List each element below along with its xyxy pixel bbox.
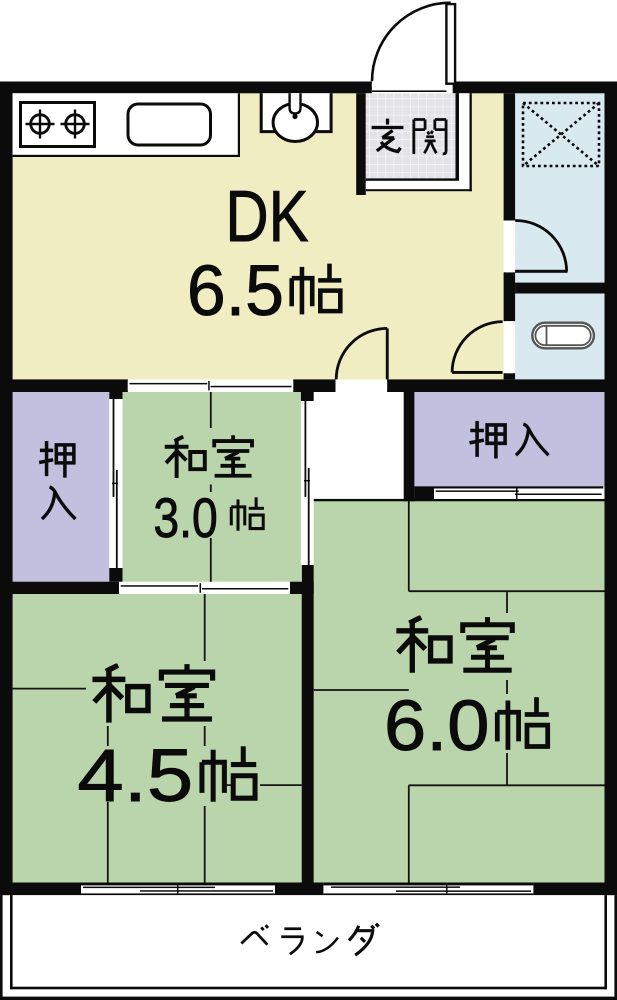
svg-text:6.0: 6.0 xyxy=(384,687,490,766)
svg-text:3.0: 3.0 xyxy=(153,486,217,549)
svg-text:4.5: 4.5 xyxy=(77,734,193,817)
svg-text:DK: DK xyxy=(225,177,308,257)
svg-text:6.5: 6.5 xyxy=(187,252,284,331)
